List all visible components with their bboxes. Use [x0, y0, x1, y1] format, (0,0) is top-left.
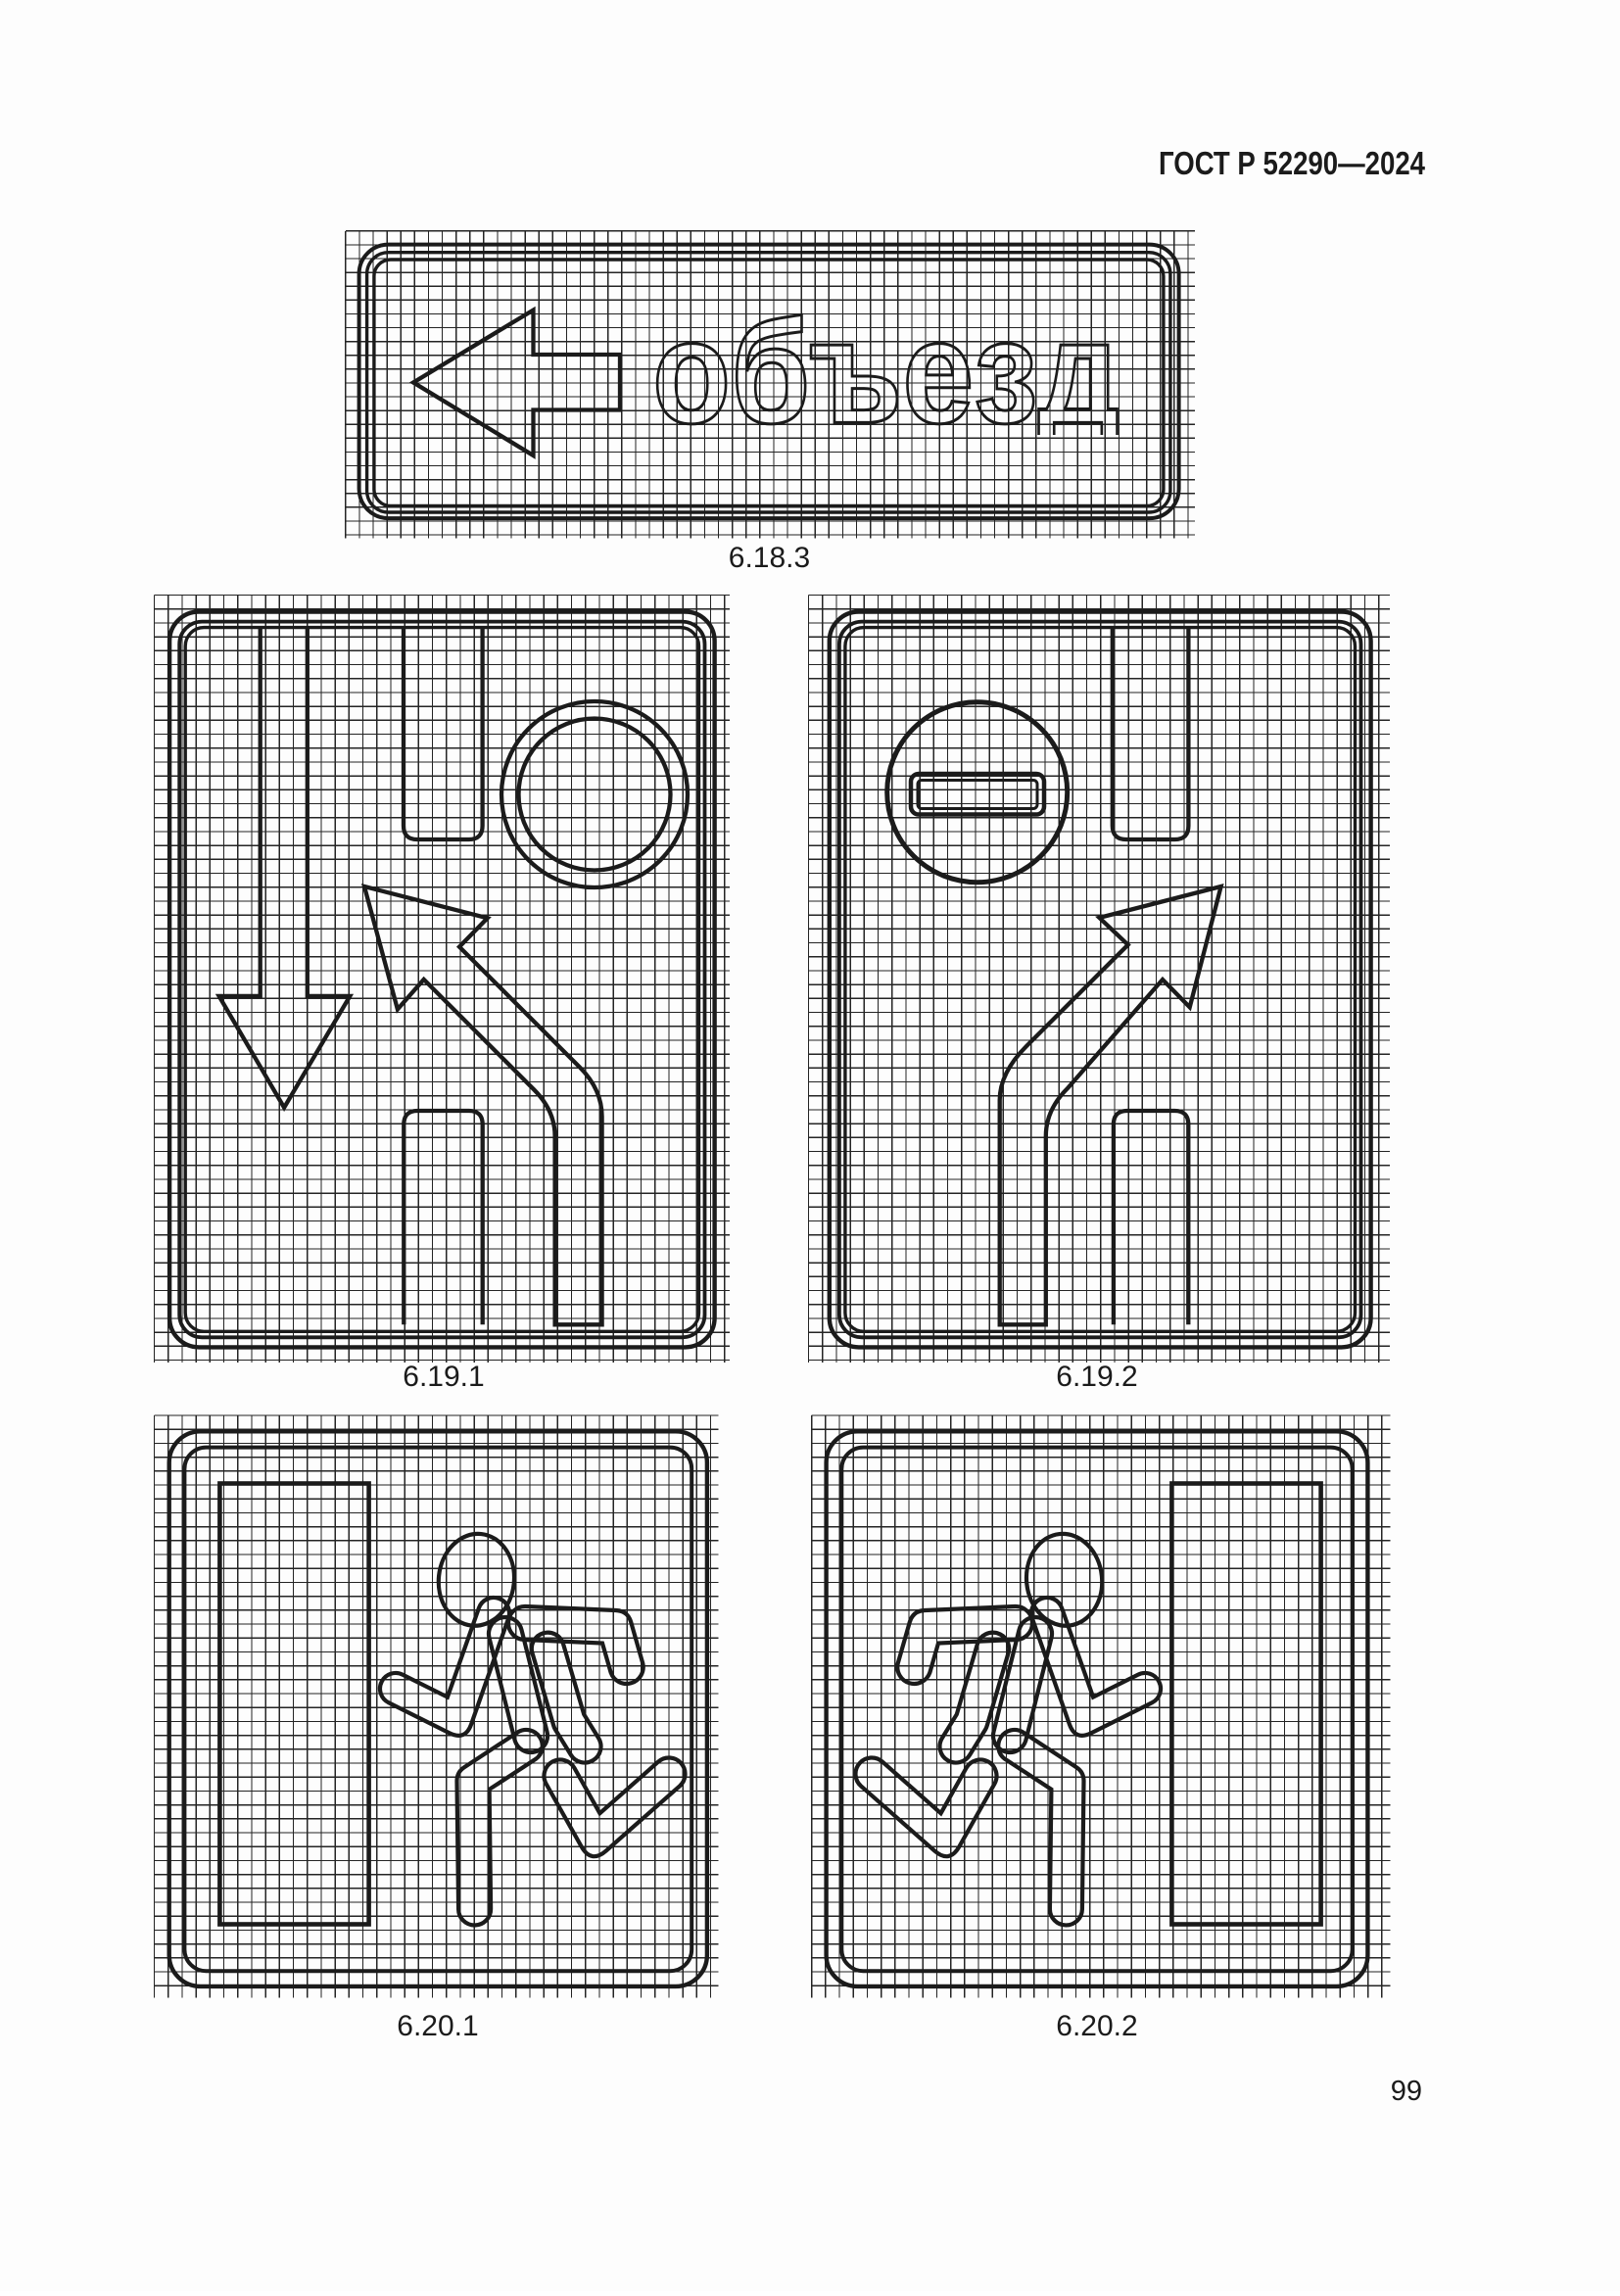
- svg-text:6.19.1: 6.19.1: [403, 1361, 484, 1393]
- svg-text:6.18.3: 6.18.3: [729, 542, 810, 574]
- svg-text:6.20.2: 6.20.2: [1056, 2010, 1137, 2042]
- svg-text:99: 99: [1391, 2076, 1422, 2107]
- svg-text:6.20.1: 6.20.1: [397, 2010, 478, 2042]
- svg-text:объезд: объезд: [652, 289, 1120, 454]
- svg-text:ГОСТ Р 52290—2024: ГОСТ Р 52290—2024: [1159, 145, 1426, 181]
- svg-text:6.19.2: 6.19.2: [1056, 1361, 1137, 1393]
